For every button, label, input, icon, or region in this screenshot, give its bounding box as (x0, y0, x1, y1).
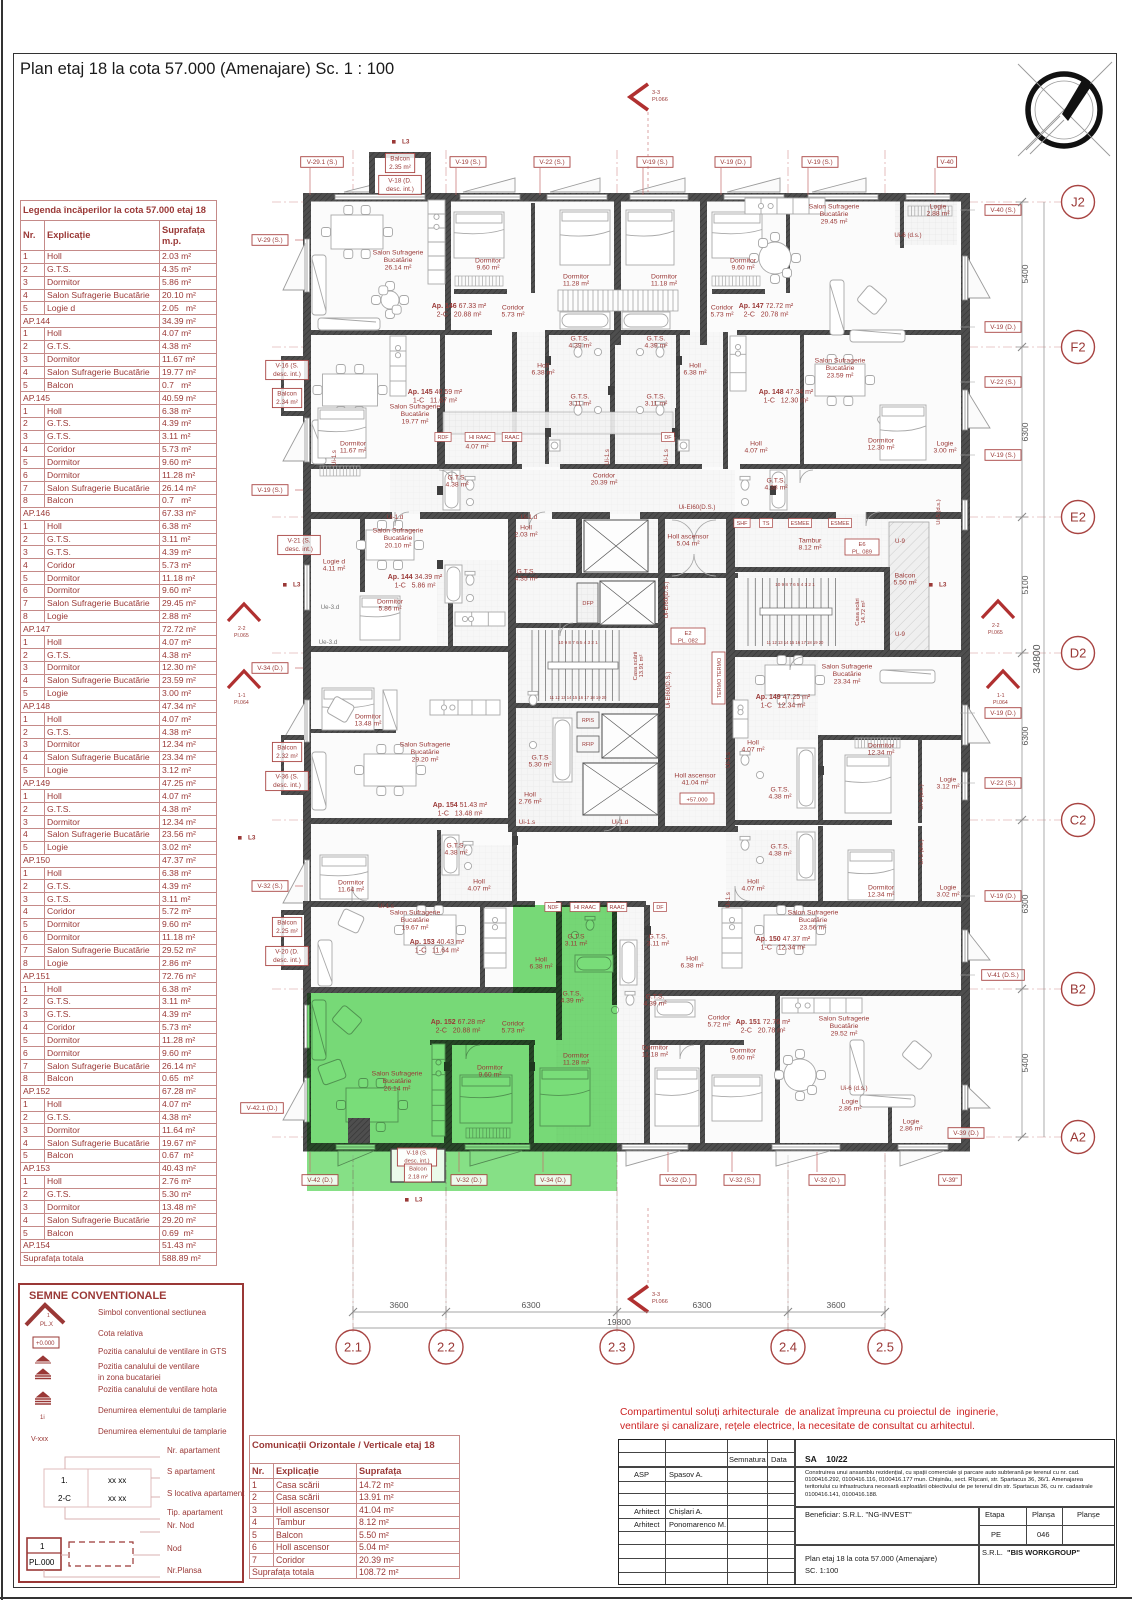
svg-text:Ui-5 (d.s.): Ui-5 (d.s.) (919, 839, 925, 865)
svg-text:desc. int.): desc. int.) (285, 546, 313, 553)
svg-text:V-34 (D.): V-34 (D.) (257, 665, 283, 672)
svg-text:Balcon: Balcon (390, 156, 410, 163)
svg-text:L3: L3 (939, 582, 947, 589)
svg-text:Pl.066: Pl.066 (652, 1299, 668, 1305)
svg-text:Dormitor9.60 m²: Dormitor9.60 m² (730, 1047, 757, 1061)
svg-text:Pl.065: Pl.065 (988, 630, 1003, 636)
svg-text:Ap. 144 34.39 m²: Ap. 144 34.39 m² (388, 574, 443, 581)
svg-text:Dormitor5.86 m²: Dormitor5.86 m² (377, 598, 404, 612)
svg-text:desc. int.): desc. int.) (273, 782, 301, 789)
svg-text:6300: 6300 (693, 1300, 712, 1310)
svg-text:Ui-1.s: Ui-1.s (726, 752, 732, 768)
svg-text:V-29 (S.): V-29 (S.) (257, 237, 282, 244)
svg-text:Ui-1.s: Ui-1.s (519, 819, 535, 826)
svg-text:TS: TS (763, 521, 770, 527)
svg-text:L3: L3 (415, 1197, 423, 1204)
svg-text:Dormitor9.60 m²: Dormitor9.60 m² (475, 257, 502, 271)
svg-text:RDF: RDF (437, 435, 449, 441)
svg-text:Ue-3.d: Ue-3.d (321, 604, 340, 611)
svg-text:V-32 (S.): V-32 (S.) (257, 883, 282, 890)
svg-text:1-C 12.34 m²: 1-C 12.34 m² (761, 945, 806, 952)
svg-text:Casa scării13.91 m²: Casa scării13.91 m² (633, 652, 645, 681)
svg-text:C2: C2 (1070, 813, 1087, 828)
svg-text:V-22 (S.): V-22 (S.) (990, 780, 1015, 787)
svg-text:2.35 m²: 2.35 m² (389, 164, 411, 171)
svg-text:2.3: 2.3 (608, 1340, 626, 1355)
svg-text:G.T.S.4.35 m²: G.T.S.4.35 m² (514, 568, 538, 582)
svg-text:Dormitor11.64 m²: Dormitor11.64 m² (338, 879, 365, 893)
svg-text:Ui-1.s: Ui-1.s (378, 904, 394, 910)
svg-text:Pl.066: Pl.066 (652, 97, 668, 103)
svg-text:1-C 13.48 m²: 1-C 13.48 m² (438, 811, 483, 818)
svg-text:NDF: NDF (547, 905, 559, 911)
svg-text:HI RAAC: HI RAAC (469, 435, 491, 441)
svg-text:D2: D2 (1070, 646, 1087, 661)
svg-text:G.T.S.4.39 m²: G.T.S.4.39 m² (560, 990, 584, 1004)
svg-text:Ap. 146 67.33 m²: Ap. 146 67.33 m² (432, 303, 487, 310)
svg-text:V-40: V-40 (940, 159, 954, 166)
svg-text:2-C 20.88 m²: 2-C 20.88 m² (437, 312, 482, 319)
svg-text:Ui-5 (d.s.): Ui-5 (d.s.) (919, 784, 925, 810)
svg-text:Ap. 152 67.28 m²: Ap. 152 67.28 m² (431, 1019, 486, 1026)
svg-text:F2: F2 (1070, 340, 1085, 355)
svg-text:V-22 (S.): V-22 (S.) (539, 159, 564, 166)
svg-text:3-3: 3-3 (652, 1292, 660, 1298)
svg-text:V-40 (S.): V-40 (S.) (990, 207, 1015, 214)
svg-text:2.34 m²: 2.34 m² (276, 399, 298, 406)
svg-text:desc. int.): desc. int.) (273, 957, 301, 964)
svg-text:1-1: 1-1 (238, 693, 246, 699)
svg-text:Ui-1.s: Ui-1.s (664, 449, 670, 465)
svg-text:V-42 (D.): V-42 (D.) (307, 1177, 333, 1184)
svg-text:Ui-5 (d.s.): Ui-5 (d.s.) (936, 499, 942, 525)
svg-text:2.4: 2.4 (779, 1340, 797, 1355)
svg-text:Coridor5.73 m²: Coridor5.73 m² (710, 304, 734, 318)
svg-text:6300: 6300 (1020, 894, 1030, 913)
svg-text:2.18 m²: 2.18 m² (408, 1175, 428, 1181)
svg-text:desc. int.): desc. int.) (273, 371, 301, 378)
svg-text:Ap. 145 40.59 m²: Ap. 145 40.59 m² (408, 389, 463, 396)
svg-text:E6: E6 (858, 542, 865, 548)
svg-text:V-39 (D.): V-39 (D.) (953, 1130, 979, 1137)
svg-text:DF: DF (664, 435, 672, 441)
svg-text:3600: 3600 (827, 1300, 846, 1310)
svg-text:Tambur8.12 m²: Tambur8.12 m² (798, 537, 822, 551)
svg-text:Ap. 148 47.34 m²: Ap. 148 47.34 m² (759, 389, 814, 396)
svg-text:3600: 3600 (390, 1300, 409, 1310)
svg-text:V-41 (D.S.): V-41 (D.S.) (987, 972, 1019, 979)
svg-text:+57.000: +57.000 (686, 798, 707, 804)
svg-text:5100: 5100 (1020, 575, 1030, 594)
svg-text:U-9: U-9 (895, 631, 906, 638)
svg-text:Coridor20.39 m²: Coridor20.39 m² (591, 472, 619, 486)
svg-text:RFIP: RFIP (582, 742, 594, 748)
svg-text:V-19 (D.): V-19 (D.) (720, 159, 746, 166)
svg-text:V-20 (D.: V-20 (D. (275, 949, 299, 956)
svg-text:V-42.1 (D.): V-42.1 (D.) (247, 1105, 278, 1112)
svg-text:ESMEE: ESMEE (831, 521, 850, 527)
svg-text:2.2: 2.2 (437, 1340, 455, 1355)
svg-text:Balcon: Balcon (277, 745, 297, 752)
svg-text:V-19 (S.): V-19 (S.) (642, 159, 667, 166)
svg-text:Balcon: Balcon (277, 920, 297, 927)
svg-text:Coridor5.73 m²: Coridor5.73 m² (501, 1020, 525, 1034)
svg-text:G.T.S.4.39 m²: G.T.S.4.39 m² (644, 335, 668, 349)
svg-text:V-32 (S.): V-32 (S.) (729, 1177, 754, 1184)
svg-text:RAAC: RAAC (505, 435, 520, 441)
svg-text:34800: 34800 (1031, 644, 1043, 673)
svg-text:1-C 12.30 m²: 1-C 12.30 m² (764, 398, 809, 405)
svg-text:V-18 (D.: V-18 (D. (388, 178, 412, 185)
svg-text:Dormitor9.60 m²: Dormitor9.60 m² (730, 257, 757, 271)
svg-text:2-2: 2-2 (238, 626, 246, 632)
svg-text:2-C 20.78 m²: 2-C 20.78 m² (744, 312, 789, 319)
svg-text:2.1: 2.1 (344, 1340, 362, 1355)
svg-text:2.25 m²: 2.25 m² (276, 928, 298, 935)
svg-text:Coridor5.72 m²: Coridor5.72 m² (707, 1014, 731, 1028)
svg-text:DFP: DFP (582, 601, 593, 607)
svg-text:2-C 20.88 m²: 2-C 20.88 m² (436, 1028, 481, 1035)
svg-text:Dormitor12.30 m²: Dormitor12.30 m² (868, 437, 896, 451)
svg-text:Ap. 151 72.76 m²: Ap. 151 72.76 m² (736, 1019, 791, 1026)
svg-text:Dormitor11.67 m²: Dormitor11.67 m² (340, 440, 367, 454)
svg-text:E2: E2 (684, 631, 691, 637)
svg-text:Dormitor12.34 m²: Dormitor12.34 m² (868, 884, 896, 898)
svg-text:2.32 m²: 2.32 m² (276, 753, 298, 760)
svg-text:Ui-1.d: Ui-1.d (612, 819, 629, 826)
svg-text:Ap. 150 47.37 m²: Ap. 150 47.37 m² (756, 936, 811, 943)
svg-text:G.T.S.4.38 m²: G.T.S.4.38 m² (768, 786, 792, 800)
svg-text:10 9 8 7 6 5 4 3 2 1: 10 9 8 7 6 5 4 3 2 1 (775, 582, 815, 587)
svg-text:Ui-1.s: Ui-1.s (332, 450, 338, 466)
svg-text:Ui-1.d: Ui-1.d (521, 514, 538, 521)
svg-text:6300: 6300 (1020, 422, 1030, 441)
svg-text:Dormitor11.18 m²: Dormitor11.18 m² (642, 1044, 669, 1058)
svg-text:Ue-3.d: Ue-3.d (319, 639, 338, 646)
svg-text:B2: B2 (1070, 982, 1086, 997)
svg-text:10 9 8 7 6 5 4 3 2 1: 10 9 8 7 6 5 4 3 2 1 (558, 640, 598, 645)
svg-text:V-34 (D.): V-34 (D.) (540, 1177, 566, 1184)
svg-text:RAAC: RAAC (610, 905, 625, 911)
svg-text:Ui-1.s: Ui-1.s (726, 892, 732, 908)
svg-text:SHF: SHF (737, 521, 748, 527)
svg-text:HI RAAC: HI RAAC (574, 905, 596, 911)
svg-text:Balcon: Balcon (277, 391, 297, 398)
svg-text:V-19 (S.): V-19 (S.) (455, 159, 480, 166)
svg-text:Casa scări14.72 m²: Casa scări14.72 m² (855, 598, 867, 625)
svg-text:E2: E2 (1070, 510, 1086, 525)
svg-text:V-29.1 (S.): V-29.1 (S.) (307, 159, 338, 166)
svg-text:V-32 (D.): V-32 (D.) (814, 1177, 840, 1184)
svg-text:G.T.S.3.11 m²: G.T.S.3.11 m² (645, 393, 668, 407)
svg-text:V-16 (S.: V-16 (S. (275, 363, 298, 370)
svg-text:1-C 12.34 m²: 1-C 12.34 m² (761, 703, 806, 710)
svg-text:2.5: 2.5 (876, 1340, 894, 1355)
svg-text:PL. 089: PL. 089 (852, 550, 872, 556)
svg-text:Ap. 154 51.43 m²: Ap. 154 51.43 m² (433, 802, 488, 809)
svg-text:V-19 (D.): V-19 (D.) (990, 710, 1016, 717)
svg-text:RPIS: RPIS (582, 718, 595, 724)
svg-text:V-19 (S.): V-19 (S.) (990, 452, 1015, 459)
svg-text:Ap. 153 40.43 m²: Ap. 153 40.43 m² (410, 939, 465, 946)
svg-text:Dormitor9.60 m²: Dormitor9.60 m² (477, 1064, 504, 1078)
svg-text:G.T.S.4.38 m²: G.T.S.4.38 m² (444, 842, 468, 856)
svg-text:Ap. 149 47.25 m²: Ap. 149 47.25 m² (756, 694, 811, 701)
svg-text:2-C 20.78 m²: 2-C 20.78 m² (741, 1028, 786, 1035)
svg-text:V-22 (S.): V-22 (S.) (990, 379, 1015, 386)
svg-text:V-19 (D.): V-19 (D.) (990, 324, 1016, 331)
svg-text:Dormitor13.48 m²: Dormitor13.48 m² (355, 713, 383, 727)
svg-text:Dormitor11.18 m²: Dormitor11.18 m² (651, 273, 678, 287)
svg-text:5400: 5400 (1020, 264, 1030, 283)
svg-text:Balcon5.50 m²: Balcon5.50 m² (893, 572, 917, 586)
svg-text:1-C 11.64 m²: 1-C 11.64 m² (415, 948, 460, 955)
svg-text:Ui-EI60(D.S.): Ui-EI60(D.S.) (665, 672, 672, 709)
svg-text:G.T.S.4.38 m²: G.T.S.4.38 m² (768, 843, 792, 857)
svg-text:1-C 11.67 m²: 1-C 11.67 m² (413, 398, 458, 405)
svg-text:U-9: U-9 (895, 538, 906, 545)
svg-text:Ap. 147 72.72 m²: Ap. 147 72.72 m² (739, 303, 794, 310)
svg-text:V-36 (S.: V-36 (S. (275, 774, 298, 781)
svg-text:6300: 6300 (1020, 726, 1030, 745)
svg-text:Ui-EI60(D.S.): Ui-EI60(D.S.) (663, 582, 670, 619)
svg-text:V-39": V-39" (942, 1177, 957, 1184)
svg-text:L3: L3 (402, 139, 410, 146)
svg-text:2-2: 2-2 (992, 623, 1000, 629)
svg-text:Ui-6 (d.s.): Ui-6 (d.s.) (840, 1085, 867, 1092)
svg-text:19800: 19800 (607, 1317, 631, 1327)
svg-text:G.T.S.4.39 m²: G.T.S.4.39 m² (643, 993, 667, 1007)
svg-text:V-32 (D.): V-32 (D.) (456, 1177, 482, 1184)
svg-text:Logie d4.11 m²: Logie d4.11 m² (323, 558, 346, 572)
svg-text:6300: 6300 (522, 1300, 541, 1310)
svg-text:L3: L3 (293, 582, 301, 589)
svg-text:V-18 (S.: V-18 (S. (407, 1151, 428, 1157)
svg-text:Ui-1.s: Ui-1.s (605, 449, 611, 465)
svg-text:V-19 (S.): V-19 (S.) (257, 487, 282, 494)
svg-text:Dormitor12.34 m²: Dormitor12.34 m² (868, 742, 896, 756)
svg-text:G.T.S.3.11 m²: G.T.S.3.11 m² (647, 933, 670, 947)
svg-text:1-1: 1-1 (997, 693, 1005, 699)
svg-text:desc. int.): desc. int.) (386, 186, 414, 193)
svg-text:Coridor5.73 m²: Coridor5.73 m² (501, 304, 525, 318)
svg-text:11 12 13 14 15 16 17 18 19 20: 11 12 13 14 15 16 17 18 19 20 (550, 695, 607, 700)
svg-text:Pl.065: Pl.065 (234, 633, 249, 639)
svg-text:Balcon: Balcon (409, 1167, 427, 1173)
svg-text:Pl.064: Pl.064 (993, 700, 1008, 706)
svg-text:A2: A2 (1070, 1130, 1086, 1145)
svg-text:ESMEE: ESMEE (791, 521, 810, 527)
svg-text:Dormitor11.28 m²: Dormitor11.28 m² (563, 273, 590, 287)
svg-text:PL. 082: PL. 082 (678, 639, 698, 645)
svg-text:G.T.S.4.39 m²: G.T.S.4.39 m² (568, 335, 592, 349)
svg-text:1-C 5.86 m²: 1-C 5.86 m² (395, 583, 437, 590)
svg-text:V-32 (D.): V-32 (D.) (665, 1177, 691, 1184)
svg-text:Ui-1.d: Ui-1.d (387, 514, 404, 521)
svg-text:V-19 (D.): V-19 (D.) (990, 893, 1016, 900)
svg-text:DF: DF (656, 905, 664, 911)
svg-text:Pl.064: Pl.064 (234, 700, 249, 706)
svg-text:Ui-6 (d.s.): Ui-6 (d.s.) (894, 232, 921, 239)
svg-text:Dormitor11.28 m²: Dormitor11.28 m² (563, 1052, 590, 1066)
svg-text:11 12 13 14 15 16 17 18 19 20: 11 12 13 14 15 16 17 18 19 20 (767, 640, 824, 645)
svg-text:G.T.S.3.11 m²: G.T.S.3.11 m² (569, 393, 592, 407)
svg-text:Ui-EI60(D.S.): Ui-EI60(D.S.) (679, 504, 716, 511)
svg-text:G.T.S.4.38 m²: G.T.S.4.38 m² (445, 474, 469, 488)
svg-text:V-19 (S.): V-19 (S.) (807, 159, 832, 166)
svg-text:3-3: 3-3 (652, 90, 660, 96)
svg-text:TERMO TERMO: TERMO TERMO (717, 658, 723, 698)
svg-text:V-21 (S.: V-21 (S. (287, 538, 310, 545)
svg-text:J2: J2 (1071, 195, 1085, 210)
svg-text:L3: L3 (248, 835, 256, 842)
svg-text:G.T.S.4.38 m²: G.T.S.4.38 m² (764, 477, 788, 491)
svg-text:5400: 5400 (1020, 1053, 1030, 1072)
